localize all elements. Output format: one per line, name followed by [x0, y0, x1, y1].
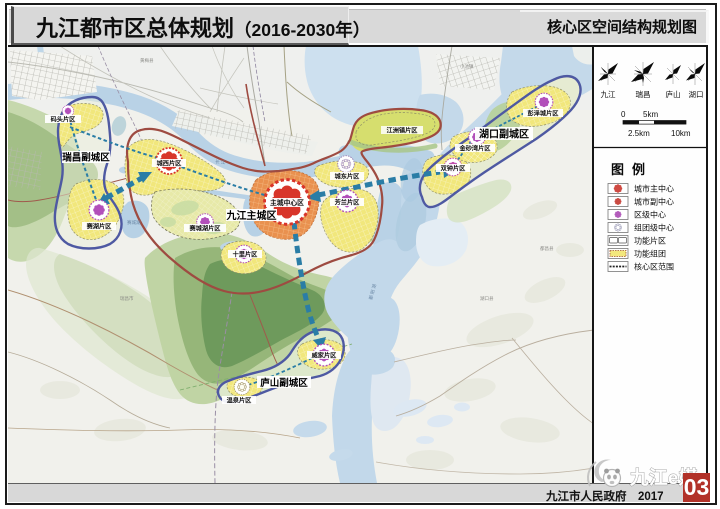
svg-text:城西片区: 城西片区: [157, 160, 183, 168]
svg-text:赛城湖: 赛城湖: [127, 219, 141, 226]
svg-text:10km: 10km: [671, 129, 691, 138]
svg-text:黄梅县: 黄梅县: [140, 57, 154, 64]
svg-text:图例: 图例: [611, 162, 653, 177]
svg-text:5km: 5km: [643, 110, 658, 119]
svg-text:功能组团: 功能组团: [634, 249, 666, 259]
svg-text:0: 0: [621, 110, 626, 119]
svg-text:江洲镇片区: 江洲镇片区: [387, 127, 419, 135]
svg-text:湖口: 湖口: [689, 90, 704, 99]
svg-text:城东片区: 城东片区: [335, 173, 361, 181]
svg-text:十里片区: 十里片区: [233, 251, 259, 259]
svg-text:主城中心区: 主城中心区: [270, 198, 304, 207]
svg-text:瑞昌市: 瑞昌市: [120, 295, 134, 302]
svg-text:城市主中心: 城市主中心: [634, 184, 674, 194]
svg-text:庐山副城区: 庐山副城区: [260, 377, 308, 389]
svg-text:码头片区: 码头片区: [51, 116, 77, 124]
svg-text:九江: 九江: [601, 90, 616, 99]
svg-text:双钟片区: 双钟片区: [440, 165, 467, 173]
svg-text:芳兰片区: 芳兰片区: [335, 199, 361, 207]
svg-text:瑞昌副城区: 瑞昌副城区: [62, 152, 110, 164]
svg-text:组团级中心: 组团级中心: [634, 223, 674, 233]
svg-text:温泉片区: 温泉片区: [227, 397, 253, 405]
svg-text:区级中心: 区级中心: [634, 210, 666, 220]
svg-text:小池镇: 小池镇: [460, 63, 474, 70]
svg-text:九江主城区: 九江主城区: [226, 209, 277, 222]
svg-text:金砂湾片区: 金砂湾片区: [459, 145, 492, 153]
svg-text:威家片区: 威家片区: [312, 352, 338, 360]
svg-text:赛湖片区: 赛湖片区: [86, 223, 113, 231]
svg-text:功能片区: 功能片区: [634, 236, 666, 246]
svg-text:城市副中心: 城市副中心: [634, 197, 674, 207]
svg-text:瑞昌: 瑞昌: [636, 89, 651, 99]
svg-text:2.5km: 2.5km: [628, 129, 650, 138]
svg-text:庐山: 庐山: [666, 89, 681, 99]
svg-text:核心区范围: 核心区范围: [634, 262, 674, 272]
svg-text:赛城湖片区: 赛城湖片区: [189, 225, 222, 233]
svg-text:湖口县: 湖口县: [480, 295, 494, 302]
svg-text:湖口副城区: 湖口副城区: [479, 127, 529, 140]
svg-text:彭泽城片区: 彭泽城片区: [528, 110, 560, 118]
